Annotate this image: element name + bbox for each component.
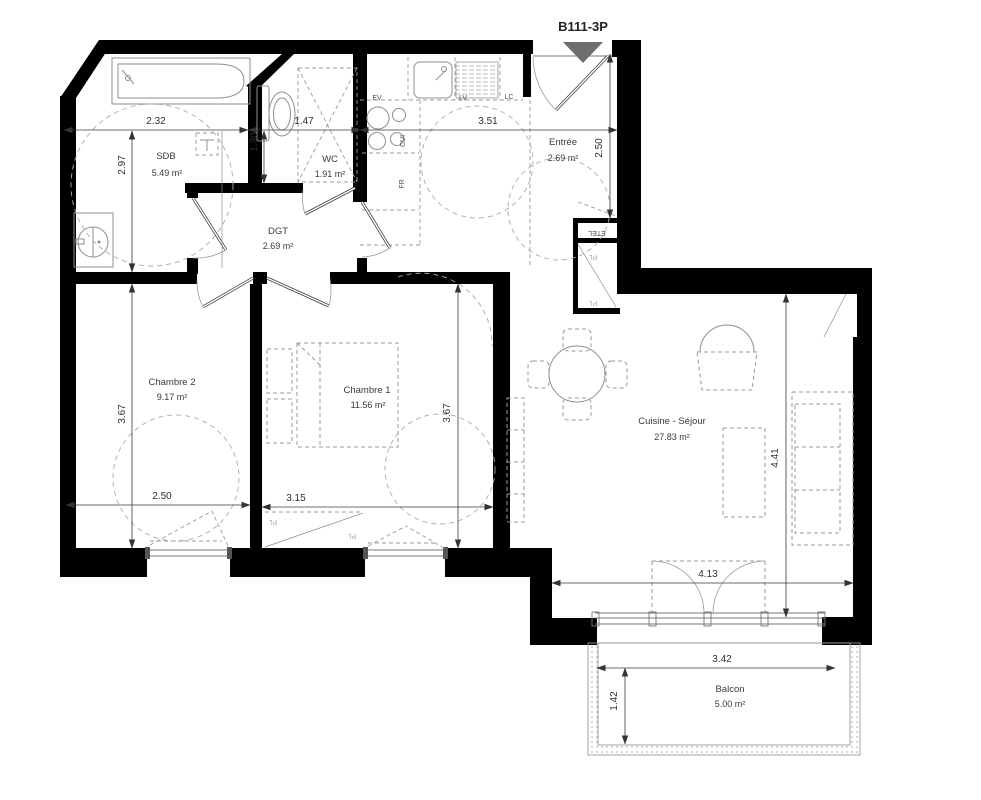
entrance-arrow-icon bbox=[563, 42, 603, 63]
window-ch1-jamb-right bbox=[443, 547, 448, 559]
label-closet-ch1-2: PL bbox=[348, 532, 357, 539]
wall-bottom-2 bbox=[230, 548, 365, 577]
sofa-cushions bbox=[795, 404, 840, 533]
washbasin-drain-icon bbox=[98, 241, 101, 244]
wall-etel-bottom bbox=[573, 238, 620, 243]
toilet-bowl bbox=[269, 92, 295, 136]
washbasin-tap-icon bbox=[76, 239, 84, 244]
dishwasher bbox=[456, 62, 498, 98]
wall-corridor-2 bbox=[253, 272, 267, 284]
label-fridge: FR bbox=[399, 179, 406, 188]
bathtub-inner bbox=[118, 64, 244, 98]
wc-door-leaf-core bbox=[305, 188, 355, 214]
label-cooktop: CUI bbox=[400, 135, 407, 147]
label-sink: EV bbox=[372, 95, 382, 102]
dim-ch2-width: 2.50 bbox=[152, 491, 172, 502]
dim-sejour-height: 4.41 bbox=[770, 448, 781, 468]
label-dishwasher: LV bbox=[459, 95, 467, 102]
toilet-bowl-inner bbox=[274, 98, 291, 130]
dim-sdb-height: 2.97 bbox=[117, 155, 128, 175]
wall-sejour-bottom-left bbox=[530, 618, 597, 645]
room-area-sejour: 27.83 m² bbox=[654, 432, 690, 442]
chambre1-door-leaf-core bbox=[267, 278, 329, 306]
room-area-balcon: 5.00 m² bbox=[715, 699, 746, 709]
wall-bottom-1 bbox=[60, 548, 147, 577]
room-name-dgt: DGT bbox=[268, 226, 288, 237]
wall-left bbox=[60, 96, 76, 548]
room-name-balcon: Balcon bbox=[715, 684, 744, 695]
bathtub-faucet-line bbox=[122, 70, 134, 84]
wall-bottom-3 bbox=[445, 548, 552, 577]
dim-wc-height: 1.30 bbox=[249, 132, 260, 152]
window-ch2-jamb-right bbox=[227, 547, 232, 559]
wall-right bbox=[853, 294, 872, 637]
chambre2-door-arc bbox=[197, 280, 203, 307]
kitchen-fixtures bbox=[360, 57, 530, 268]
wall-wc-bottom bbox=[250, 183, 303, 193]
wall-chamfer-topleft bbox=[60, 40, 114, 98]
coffee-table bbox=[723, 428, 765, 517]
window-ch1-jamb-left bbox=[363, 547, 368, 559]
cooktop-burner-3 bbox=[369, 133, 386, 150]
walls bbox=[60, 40, 872, 645]
wall-etel-top bbox=[573, 218, 620, 223]
room-name-entree: Entrée bbox=[549, 137, 577, 148]
room-area-entree: 2.69 m² bbox=[548, 153, 579, 163]
closet-ch1-diagonal bbox=[265, 513, 363, 547]
dim-balcon-width: 3.42 bbox=[712, 654, 732, 665]
wall-sdb-door-stub-bottom bbox=[187, 258, 198, 274]
sofa bbox=[792, 392, 853, 545]
dim-ch2-height: 3.67 bbox=[117, 404, 128, 424]
room-area-sdb: 5.49 m² bbox=[152, 168, 183, 178]
closets bbox=[265, 202, 616, 547]
wall-wc-right bbox=[353, 54, 367, 202]
nightstand-2 bbox=[267, 399, 292, 443]
dim-sejour-width: 4.13 bbox=[698, 569, 718, 580]
room-name-chambre2: Chambre 2 bbox=[149, 377, 196, 388]
label-washer: LC bbox=[505, 94, 514, 101]
room-name-sdb: SDB bbox=[156, 151, 176, 162]
sdb-door-arc bbox=[193, 250, 226, 258]
clearance-arc-chambre1 bbox=[398, 273, 492, 346]
window-ch1-swing-2 bbox=[406, 526, 444, 548]
label-closet-ch1-1: PL bbox=[269, 518, 278, 525]
chambre2-door-leaf-core bbox=[203, 278, 253, 307]
balcony-door-arc-right bbox=[713, 561, 765, 613]
wall-entrance-jamb bbox=[612, 40, 641, 57]
dim-ch1-height: 3.67 bbox=[442, 403, 453, 423]
room-name-chambre1: Chambre 1 bbox=[344, 385, 391, 396]
wall-closet-bottom bbox=[573, 308, 620, 314]
clearance-chambre1 bbox=[385, 414, 495, 524]
chair-west bbox=[528, 361, 549, 388]
room-name-wc: WC bbox=[322, 154, 338, 165]
clearance-entree bbox=[508, 158, 610, 260]
room-area-wc: 1.91 m² bbox=[315, 169, 346, 179]
furniture bbox=[267, 325, 853, 545]
dim-wc-width: 1.47 bbox=[294, 116, 314, 127]
dim-sdb-width: 2.32 bbox=[146, 116, 166, 127]
armchair-seat bbox=[697, 352, 757, 390]
wall-entree-right bbox=[617, 57, 641, 294]
nightstand-1 bbox=[267, 349, 292, 393]
floor-plan-canvas: 2.32 1.47 3.51 2.97 1.30 2.50 3.67 2.50 … bbox=[0, 0, 981, 800]
wall-sdb-door-stub-top bbox=[187, 185, 198, 198]
room-area-dgt: 2.69 m² bbox=[263, 241, 294, 251]
wall-corner-notch bbox=[824, 294, 857, 337]
chair-south bbox=[563, 398, 591, 420]
dining-table bbox=[549, 346, 605, 402]
wall-between-bedrooms bbox=[250, 284, 262, 548]
cooktop-burner-1 bbox=[367, 107, 389, 129]
label-closet-entree-2: PL bbox=[589, 299, 598, 306]
wc-door-arc bbox=[302, 190, 305, 214]
room-name-sejour: Cuisine - Séjour bbox=[638, 416, 706, 427]
dim-balcon-height: 1.42 bbox=[609, 691, 620, 711]
wall-stub-kitchen bbox=[523, 54, 531, 97]
bed-fold-line bbox=[297, 343, 320, 365]
cooktop-burner-2 bbox=[393, 109, 406, 122]
label-closet-entree-1: PL bbox=[589, 253, 598, 260]
chair-east bbox=[606, 361, 627, 388]
label-etel: ETEL bbox=[588, 229, 606, 236]
clearance-kitchen bbox=[421, 106, 533, 218]
room-area-chambre2: 9.17 m² bbox=[157, 392, 188, 402]
window-ch1-swing-1 bbox=[368, 526, 406, 546]
wall-sejour-top bbox=[633, 268, 872, 294]
floor-plan-page: 2.32 1.47 3.51 2.97 1.30 2.50 3.67 2.50 … bbox=[0, 0, 981, 800]
window-ch2-swing-1 bbox=[150, 511, 212, 545]
entrance-door-leaf-core bbox=[556, 56, 608, 110]
balcony-door-arc-left bbox=[652, 561, 704, 613]
entrance-door-arc bbox=[533, 57, 556, 110]
kitchen-door-arc bbox=[362, 248, 390, 257]
wall-corridor-1 bbox=[60, 272, 197, 284]
wall-closet-left bbox=[573, 218, 578, 314]
sink-faucet-line bbox=[436, 70, 446, 80]
wall-top bbox=[99, 40, 533, 54]
kitchen-door-leaf-core bbox=[362, 202, 390, 248]
dim-entree-height: 2.50 bbox=[594, 138, 605, 158]
plan-title: B111-3P bbox=[558, 19, 608, 34]
room-area-chambre1: 11.56 m² bbox=[351, 400, 386, 410]
window-ch2-jamb-left bbox=[145, 547, 150, 559]
armchair-back bbox=[700, 325, 754, 352]
dim-cuisine-width: 3.51 bbox=[478, 116, 498, 127]
dim-ch1-width: 3.15 bbox=[286, 493, 306, 504]
wall-sejour-bottom-right bbox=[822, 617, 872, 645]
